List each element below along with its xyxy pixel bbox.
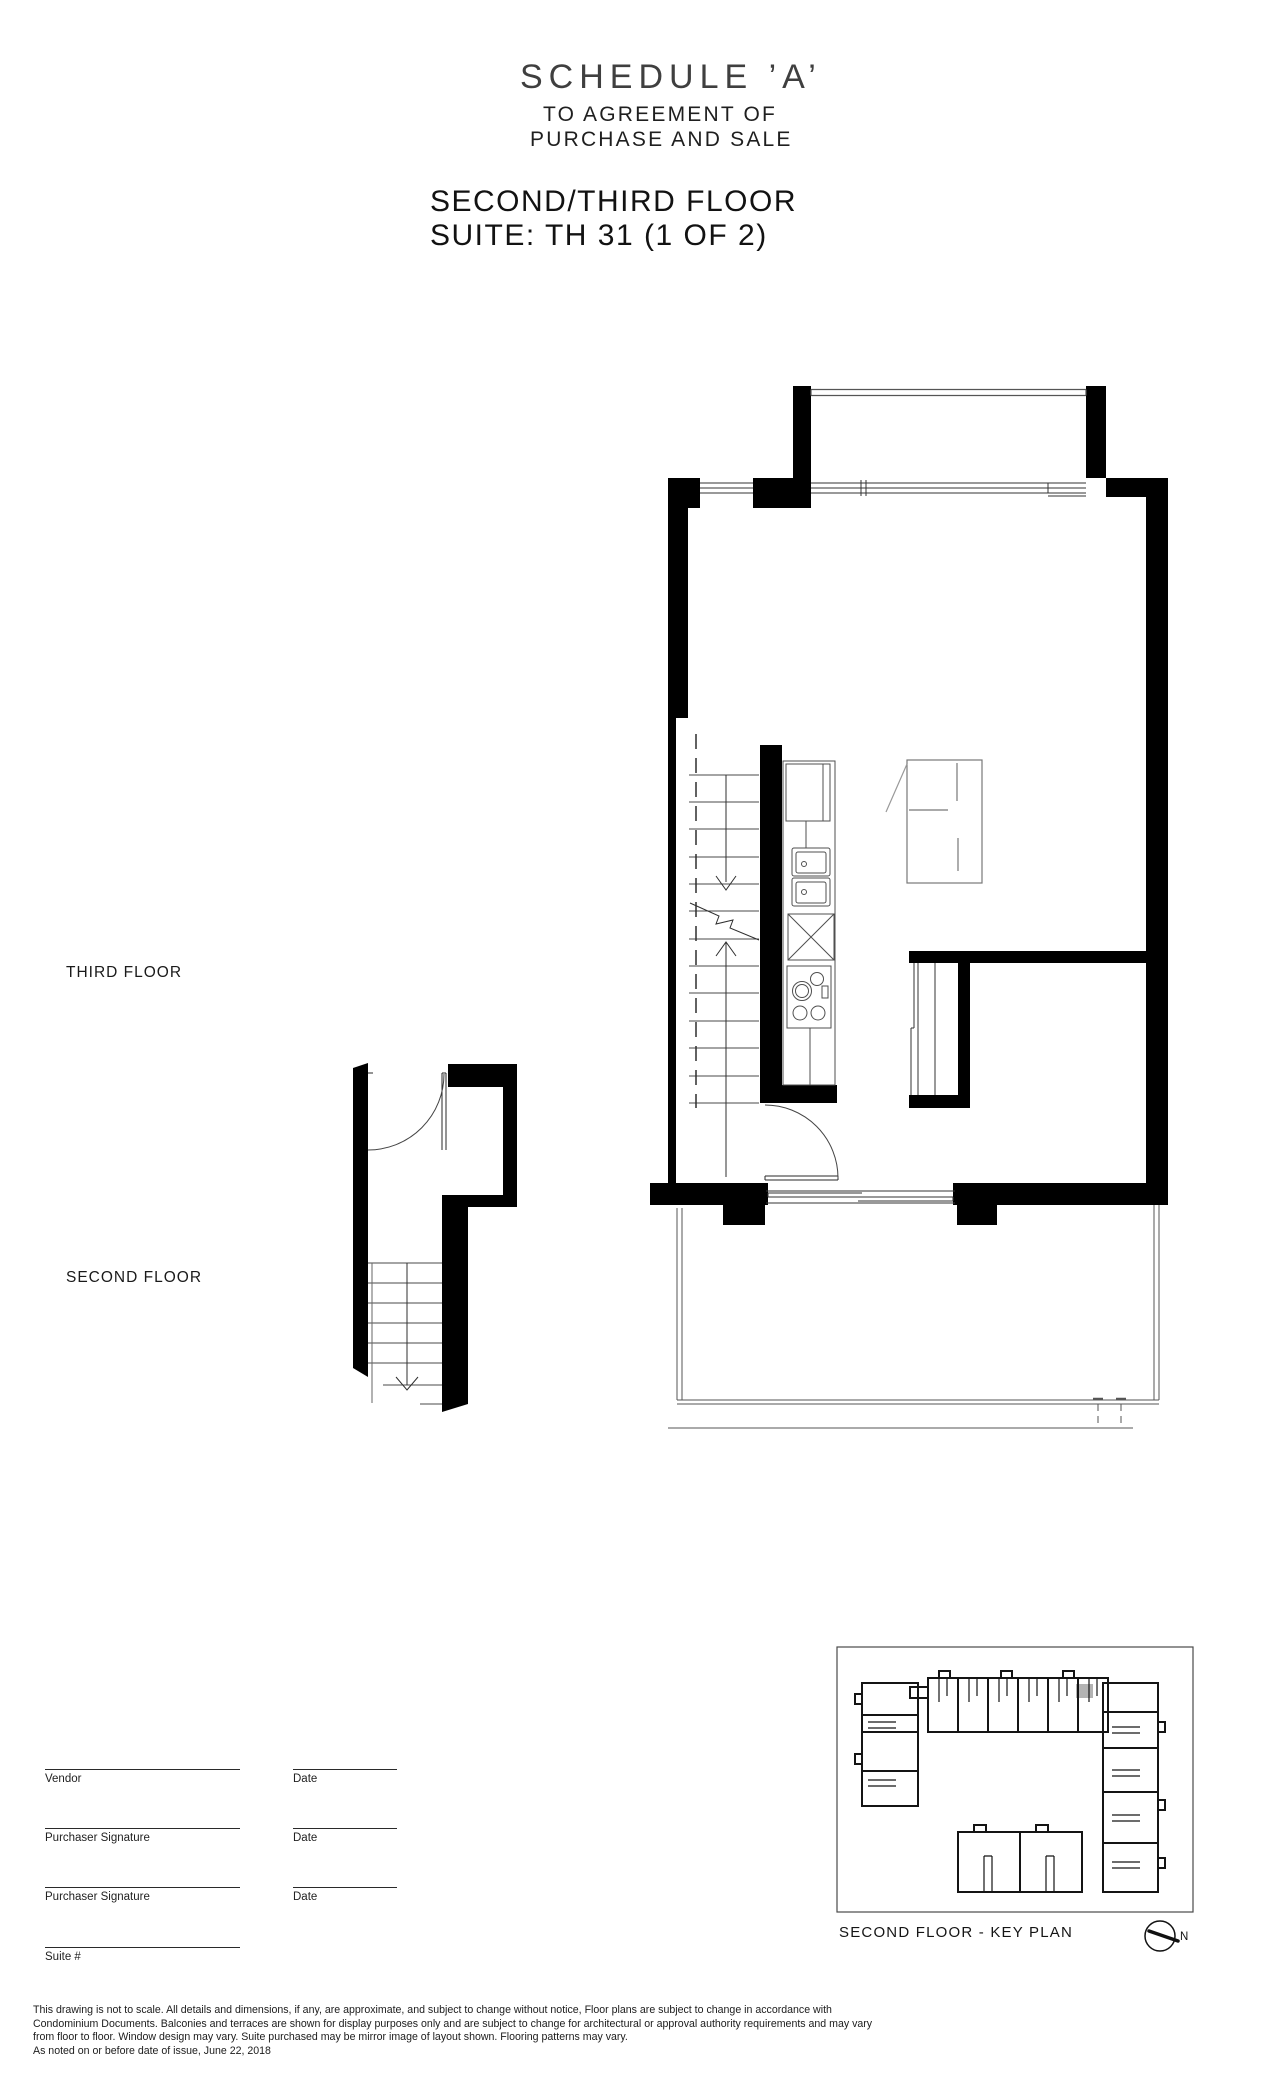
closet [886, 760, 982, 883]
vendor-label: Vendor [45, 1773, 240, 1785]
disclaimer-line-4: As noted on or before date of issue, Jun… [33, 2045, 872, 2059]
kitchen-door [765, 1105, 838, 1180]
stairs-second-floor [368, 1263, 442, 1404]
vendor-signature-field: Vendor [45, 1769, 240, 1785]
purchaser1-date-line [293, 1828, 397, 1829]
second-floor-label: SECOND FLOOR [66, 1269, 202, 1287]
suite-number-line [45, 1947, 240, 1948]
purchaser1-date-field: Date [293, 1828, 397, 1844]
floor-plan-drawing [0, 0, 1275, 2100]
purchaser1-label: Purchaser Signature [45, 1832, 240, 1844]
disclaimer-line-2: Condominium Documents. Balconies and ter… [33, 2018, 872, 2032]
disclaimer-line-1: This drawing is not to scale. All detail… [33, 2004, 872, 2018]
purchaser1-signature-line [45, 1828, 240, 1829]
purchaser2-signature-field: Purchaser Signature [45, 1887, 240, 1903]
vendor-date-label: Date [293, 1773, 397, 1785]
disclaimer-line-3: from floor to floor. Window design may v… [33, 2031, 872, 2045]
vendor-date-field: Date [293, 1769, 397, 1785]
third-floor-plan [650, 386, 1168, 1428]
purchaser2-signature-line [45, 1887, 240, 1888]
north-label: N [1180, 1931, 1188, 1943]
stairs-third-floor [689, 734, 759, 1177]
purchaser2-date-label: Date [293, 1891, 397, 1903]
patio [668, 1205, 1159, 1428]
suite-number-field: Suite # [45, 1947, 240, 1963]
north-arrow-icon [1145, 1921, 1178, 1951]
floor-title: SECOND/THIRD FLOOR [430, 185, 797, 219]
key-plan-caption: SECOND FLOOR - KEY PLAN [839, 1924, 1073, 1941]
sliding-door [766, 1191, 955, 1203]
agreement-line-2: PURCHASE AND SALE [530, 128, 793, 152]
bathroom-partitions [911, 963, 935, 1095]
entry-door [368, 1073, 446, 1150]
agreement-line-1: TO AGREEMENT OF [543, 103, 777, 127]
balcony-rail [811, 390, 1086, 396]
disclaimer-block: This drawing is not to scale. All detail… [33, 2004, 872, 2058]
schedule-title: SCHEDULE ’A’ [520, 58, 822, 97]
key-plan [837, 1647, 1193, 1912]
vendor-date-line [293, 1769, 397, 1770]
purchaser2-date-field: Date [293, 1887, 397, 1903]
vendor-signature-line [45, 1769, 240, 1770]
third-floor-label: THIRD FLOOR [66, 964, 182, 982]
purchaser1-signature-field: Purchaser Signature [45, 1828, 240, 1844]
schedule-a-page: SCHEDULE ’A’ TO AGREEMENT OF PURCHASE AN… [0, 0, 1275, 2100]
purchaser2-label: Purchaser Signature [45, 1891, 240, 1903]
suite-number-label: Suite # [45, 1951, 240, 1963]
suite-title: SUITE: TH 31 (1 OF 2) [430, 219, 768, 253]
second-floor-plan [353, 1063, 517, 1412]
kitchen-fixtures [783, 761, 835, 1085]
purchaser2-date-line [293, 1887, 397, 1888]
purchaser1-date-label: Date [293, 1832, 397, 1844]
